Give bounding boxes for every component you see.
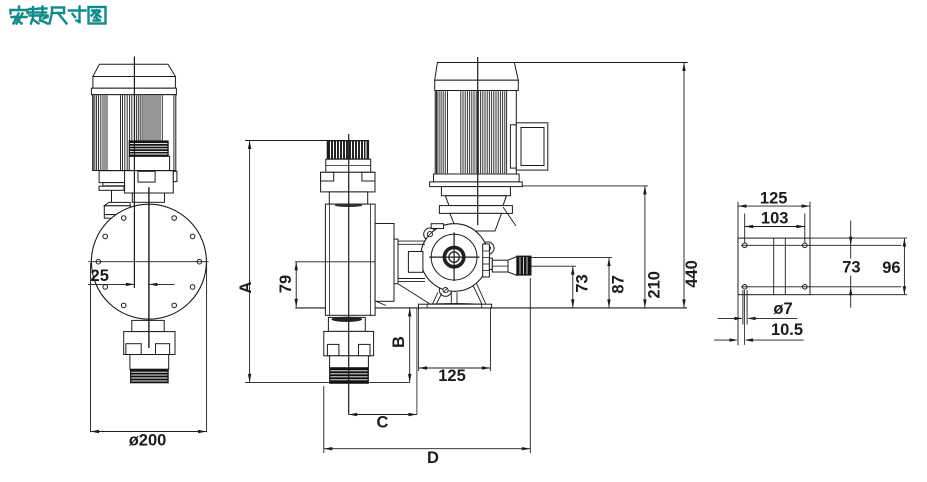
svg-text:103: 103 <box>761 210 789 228</box>
svg-text:A: A <box>237 281 255 293</box>
svg-text:25: 25 <box>91 267 109 285</box>
svg-text:73: 73 <box>842 259 860 277</box>
svg-text:125: 125 <box>760 189 788 207</box>
svg-text:10.5: 10.5 <box>771 321 803 339</box>
svg-text:ø200: ø200 <box>129 432 167 450</box>
svg-text:B: B <box>390 336 408 348</box>
svg-text:73: 73 <box>573 274 591 292</box>
svg-text:210: 210 <box>646 271 664 299</box>
svg-text:96: 96 <box>882 259 900 277</box>
svg-text:125: 125 <box>438 367 466 385</box>
svg-text:C: C <box>377 414 389 432</box>
svg-text:440: 440 <box>683 260 701 288</box>
svg-text:87: 87 <box>610 275 628 293</box>
svg-text:79: 79 <box>277 275 295 293</box>
svg-text:D: D <box>427 449 439 467</box>
svg-text:ø7: ø7 <box>773 300 792 318</box>
